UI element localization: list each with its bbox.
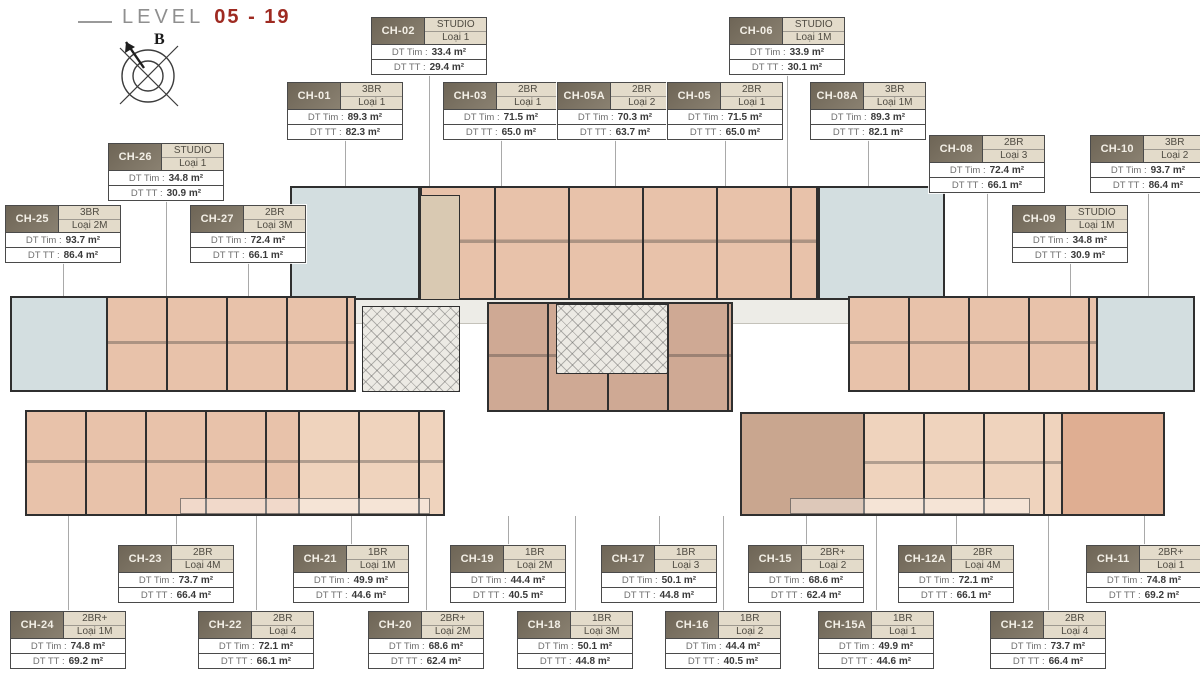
- dt-tt-row: DT TT : 69.2 m²: [1087, 588, 1200, 602]
- unit-id: CH-15: [749, 546, 801, 572]
- dt-tt-row: DT TT : 86.4 m²: [1091, 178, 1200, 192]
- dt-tim-label: DT Tim :: [219, 641, 255, 652]
- dt-tim-label: DT Tim :: [211, 235, 247, 246]
- unit-bedrooms: 2BR: [611, 83, 672, 97]
- dt-tt-value: 86.4 m²: [1149, 180, 1183, 191]
- dt-tt-row: DT TT : 63.7 m²: [558, 125, 672, 139]
- dt-tim-value: 68.6 m²: [429, 641, 463, 652]
- dt-tim-value: 89.3 m²: [871, 112, 905, 123]
- dt-tim-row: DT Tim : 93.7 m²: [1091, 163, 1200, 178]
- dt-tt-row: DT TT : 66.1 m²: [899, 588, 1013, 602]
- unit-loai: Loại 2M: [504, 560, 565, 572]
- unit-card: CH-09 STUDIO Loại 1M DT Tim : 34.8 m² DT…: [1012, 205, 1128, 263]
- dt-tt-value: 44.8 m²: [576, 656, 610, 667]
- dt-tim-value: 72.1 m²: [959, 575, 993, 586]
- unit-card: CH-23 2BR Loại 4M DT Tim : 73.7 m² DT TT…: [118, 545, 234, 603]
- unit-block-top-right-corner: [818, 186, 945, 300]
- unit-card-header: CH-15 2BR+ Loại 2: [749, 546, 863, 573]
- dt-tim-label: DT Tim :: [750, 47, 786, 58]
- dt-tt-label: DT TT :: [833, 127, 865, 138]
- unit-card-header: CH-16 1BR Loại 2: [666, 612, 780, 639]
- unit-id: CH-23: [119, 546, 171, 572]
- unit-type-cell: 2BR+ Loại 1: [1139, 546, 1200, 572]
- dt-tim-label: DT Tim :: [389, 641, 425, 652]
- unit-card-header: CH-03 2BR Loại 1: [444, 83, 558, 110]
- dt-tim-value: 68.6 m²: [809, 575, 843, 586]
- unit-card: CH-20 2BR+ Loại 2M DT Tim : 68.6 m² DT T…: [368, 611, 484, 669]
- dt-tim-row: DT Tim : 34.8 m²: [109, 171, 223, 186]
- unit-bedrooms: 2BR: [172, 546, 233, 560]
- dt-tim-label: DT Tim :: [392, 47, 428, 58]
- dt-tim-row: DT Tim : 89.3 m²: [811, 110, 925, 125]
- unit-card: CH-22 2BR Loại 4 DT Tim : 72.1 m² DT TT …: [198, 611, 314, 669]
- dt-tim-label: DT Tim :: [139, 575, 175, 586]
- dt-tt-value: 69.2 m²: [1145, 590, 1179, 601]
- unit-loai: Loại 2M: [59, 220, 120, 232]
- unit-block-left-arm: [106, 296, 356, 392]
- unit-id: CH-21: [294, 546, 346, 572]
- dt-tim-row: DT Tim : 89.3 m²: [288, 110, 402, 125]
- unit-loai: Loại 2: [611, 97, 672, 109]
- unit-id: CH-16: [666, 612, 718, 638]
- unit-type-cell: 2BR Loại 4: [251, 612, 313, 638]
- unit-id: CH-24: [11, 612, 63, 638]
- unit-loai: Loại 3M: [244, 220, 305, 232]
- dt-tim-label: DT Tim :: [471, 575, 507, 586]
- dt-tim-label: DT Tim :: [686, 641, 722, 652]
- dt-tt-label: DT TT :: [28, 250, 60, 261]
- dt-tt-label: DT TT :: [131, 188, 163, 199]
- dt-tt-value: 44.6 m²: [877, 656, 911, 667]
- dt-tim-label: DT Tim :: [1033, 235, 1069, 246]
- unit-bedrooms: 3BR: [59, 206, 120, 220]
- dt-tt-label: DT TT :: [141, 590, 173, 601]
- dt-tim-row: DT Tim : 73.7 m²: [119, 573, 233, 588]
- dt-tim-label: DT Tim :: [464, 112, 500, 123]
- dt-tim-value: 33.4 m²: [432, 47, 466, 58]
- unit-loai: Loại 4M: [952, 560, 1013, 572]
- unit-type-cell: 2BR Loại 1: [496, 83, 558, 109]
- dt-tt-row: DT TT : 30.9 m²: [1013, 248, 1127, 262]
- dt-tt-value: 62.4 m²: [427, 656, 461, 667]
- unit-type-cell: 1BR Loại 2M: [503, 546, 565, 572]
- dt-tt-row: DT TT : 82.3 m²: [288, 125, 402, 139]
- dt-tt-row: DT TT : 66.4 m²: [119, 588, 233, 602]
- unit-id: CH-20: [369, 612, 421, 638]
- dt-tt-row: DT TT : 30.9 m²: [109, 186, 223, 200]
- dt-tim-value: 72.1 m²: [259, 641, 293, 652]
- dt-tt-row: DT TT : 62.4 m²: [369, 654, 483, 668]
- unit-bedrooms: 2BR+: [422, 612, 483, 626]
- unit-type-cell: 3BR Loại 1M: [863, 83, 925, 109]
- unit-id: CH-02: [372, 18, 424, 44]
- dt-tt-label: DT TT :: [771, 590, 803, 601]
- dt-tt-value: 66.1 m²: [957, 590, 991, 601]
- dt-tim-value: 44.4 m²: [511, 575, 545, 586]
- unit-type-cell: 3BR Loại 1: [340, 83, 402, 109]
- unit-card-header: CH-18 1BR Loại 3M: [518, 612, 632, 639]
- dt-tim-label: DT Tim :: [950, 165, 986, 176]
- dt-tim-value: 74.8 m²: [1147, 575, 1181, 586]
- unit-card: CH-12A 2BR Loại 4M DT Tim : 72.1 m² DT T…: [898, 545, 1014, 603]
- dt-tim-row: DT Tim : 72.1 m²: [899, 573, 1013, 588]
- unit-bedrooms: 1BR: [719, 612, 780, 626]
- dt-tim-row: DT Tim : 74.8 m²: [1087, 573, 1200, 588]
- dt-tt-value: 66.1 m²: [249, 250, 283, 261]
- dt-tim-label: DT Tim :: [769, 575, 805, 586]
- dt-tim-row: DT Tim : 44.4 m²: [451, 573, 565, 588]
- unit-card-header: CH-20 2BR+ Loại 2M: [369, 612, 483, 639]
- dt-tt-row: DT TT : 29.4 m²: [372, 60, 486, 74]
- unit-card-header: CH-09 STUDIO Loại 1M: [1013, 206, 1127, 233]
- dt-tim-row: DT Tim : 93.7 m²: [6, 233, 120, 248]
- unit-bedrooms: 3BR: [341, 83, 402, 97]
- unit-id: CH-12: [991, 612, 1043, 638]
- dt-tim-row: DT Tim : 73.7 m²: [991, 639, 1105, 654]
- unit-bedrooms: 2BR: [497, 83, 558, 97]
- dt-tt-value: 65.0 m²: [726, 127, 760, 138]
- unit-bedrooms: 3BR: [1144, 136, 1200, 150]
- dt-tt-value: 29.4 m²: [430, 62, 464, 73]
- unit-type-cell: 2BR+ Loại 2: [801, 546, 863, 572]
- dt-tim-value: 72.4 m²: [990, 165, 1024, 176]
- dt-tt-value: 30.9 m²: [167, 188, 201, 199]
- dt-tt-value: 44.6 m²: [352, 590, 386, 601]
- unit-card: CH-15 2BR+ Loại 2 DT Tim : 68.6 m² DT TT…: [748, 545, 864, 603]
- unit-type-cell: 1BR Loại 3: [654, 546, 716, 572]
- dt-tim-row: DT Tim : 50.1 m²: [602, 573, 716, 588]
- dt-tim-value: 34.8 m²: [169, 173, 203, 184]
- unit-type-cell: 2BR+ Loại 1M: [63, 612, 125, 638]
- dt-tt-row: DT TT : 44.6 m²: [294, 588, 408, 602]
- unit-card-header: CH-02 STUDIO Loại 1: [372, 18, 486, 45]
- unit-card-header: CH-10 3BR Loại 2: [1091, 136, 1200, 163]
- dt-tt-value: 86.4 m²: [64, 250, 98, 261]
- unit-card-header: CH-23 2BR Loại 4M: [119, 546, 233, 573]
- unit-block-right-corner: [1096, 296, 1195, 392]
- dt-tt-value: 44.8 m²: [660, 590, 694, 601]
- dt-tt-row: DT TT : 44.8 m²: [518, 654, 632, 668]
- unit-bedrooms: 1BR: [655, 546, 716, 560]
- dt-tim-row: DT Tim : 72.1 m²: [199, 639, 313, 654]
- dt-tt-row: DT TT : 62.4 m²: [749, 588, 863, 602]
- unit-card-header: CH-22 2BR Loại 4: [199, 612, 313, 639]
- unit-card: CH-18 1BR Loại 3M DT Tim : 50.1 m² DT TT…: [517, 611, 633, 669]
- dt-tt-label: DT TT :: [540, 656, 572, 667]
- unit-type-cell: 1BR Loại 2: [718, 612, 780, 638]
- unit-card-header: CH-26 STUDIO Loại 1: [109, 144, 223, 171]
- unit-card-header: CH-25 3BR Loại 2M: [6, 206, 120, 233]
- unit-type-cell: 2BR Loại 3M: [243, 206, 305, 232]
- unit-block-top-studio: [420, 195, 460, 300]
- unit-card: CH-24 2BR+ Loại 1M DT Tim : 74.8 m² DT T…: [10, 611, 126, 669]
- unit-type-cell: 1BR Loại 1: [871, 612, 933, 638]
- unit-card: CH-21 1BR Loại 1M DT Tim : 49.9 m² DT TT…: [293, 545, 409, 603]
- unit-card-header: CH-21 1BR Loại 1M: [294, 546, 408, 573]
- dt-tim-row: DT Tim : 49.9 m²: [819, 639, 933, 654]
- unit-loai: Loại 1M: [864, 97, 925, 109]
- dt-tt-label: DT TT :: [752, 62, 784, 73]
- dt-tt-label: DT TT :: [841, 656, 873, 667]
- unit-bedrooms: 2BR: [252, 612, 313, 626]
- unit-card: CH-06 STUDIO Loại 1M DT Tim : 33.9 m² DT…: [729, 17, 845, 75]
- unit-type-cell: 3BR Loại 2: [1143, 136, 1200, 162]
- unit-card-header: CH-19 1BR Loại 2M: [451, 546, 565, 573]
- dt-tt-row: DT TT : 82.1 m²: [811, 125, 925, 139]
- unit-id: CH-17: [602, 546, 654, 572]
- unit-bedrooms: 2BR+: [802, 546, 863, 560]
- unit-type-cell: STUDIO Loại 1: [161, 144, 223, 170]
- unit-loai: Loại 1M: [783, 32, 844, 44]
- unit-card-header: CH-11 2BR+ Loại 1: [1087, 546, 1200, 573]
- dt-tt-label: DT TT :: [213, 250, 245, 261]
- dt-tim-row: DT Tim : 72.4 m²: [191, 233, 305, 248]
- unit-type-cell: 3BR Loại 2M: [58, 206, 120, 232]
- unit-block-right-arm: [848, 296, 1098, 392]
- unit-card: CH-03 2BR Loại 1 DT Tim : 71.5 m² DT TT …: [443, 82, 559, 140]
- dt-tim-row: DT Tim : 70.3 m²: [558, 110, 672, 125]
- dt-tim-label: DT Tim :: [1011, 641, 1047, 652]
- dt-tim-label: DT Tim :: [622, 575, 658, 586]
- unit-card: CH-05 2BR Loại 1 DT Tim : 71.5 m² DT TT …: [667, 82, 783, 140]
- unit-id: CH-18: [518, 612, 570, 638]
- dt-tt-value: 66.4 m²: [1049, 656, 1083, 667]
- unit-loai: Loại 1M: [347, 560, 408, 572]
- unit-loai: Loại 4: [1044, 626, 1105, 638]
- dt-tt-label: DT TT :: [1035, 250, 1067, 261]
- dt-tt-value: 40.5 m²: [509, 590, 543, 601]
- dt-tt-value: 30.1 m²: [788, 62, 822, 73]
- unit-bedrooms: 1BR: [872, 612, 933, 626]
- unit-card: CH-08 2BR Loại 3 DT Tim : 72.4 m² DT TT …: [929, 135, 1045, 193]
- unit-card: CH-10 3BR Loại 2 DT Tim : 93.7 m² DT TT …: [1090, 135, 1200, 193]
- unit-id: CH-27: [191, 206, 243, 232]
- unit-loai: Loại 3: [655, 560, 716, 572]
- unit-loai: Loại 2: [719, 626, 780, 638]
- unit-card: CH-26 STUDIO Loại 1 DT Tim : 34.8 m² DT …: [108, 143, 224, 201]
- unit-bedrooms: 2BR: [983, 136, 1044, 150]
- dt-tim-row: DT Tim : 33.4 m²: [372, 45, 486, 60]
- unit-id: CH-26: [109, 144, 161, 170]
- dt-tt-label: DT TT :: [1113, 180, 1145, 191]
- balcony-strip-bottom-right: [790, 498, 1030, 514]
- unit-card-header: CH-05 2BR Loại 1: [668, 83, 782, 110]
- dt-tim-value: 34.8 m²: [1073, 235, 1107, 246]
- dt-tim-value: 70.3 m²: [618, 112, 652, 123]
- unit-loai: Loại 1: [872, 626, 933, 638]
- dt-tim-row: DT Tim : 68.6 m²: [749, 573, 863, 588]
- dt-tt-label: DT TT :: [580, 127, 612, 138]
- unit-type-cell: 2BR Loại 4: [1043, 612, 1105, 638]
- dt-tt-label: DT TT :: [310, 127, 342, 138]
- dt-tt-label: DT TT :: [394, 62, 426, 73]
- dt-tim-value: 49.9 m²: [879, 641, 913, 652]
- unit-bedrooms: STUDIO: [425, 18, 486, 32]
- unit-bedrooms: 2BR+: [1140, 546, 1200, 560]
- dt-tim-row: DT Tim : 34.8 m²: [1013, 233, 1127, 248]
- unit-bedrooms: 1BR: [571, 612, 632, 626]
- dt-tt-label: DT TT :: [690, 127, 722, 138]
- unit-bedrooms: 3BR: [864, 83, 925, 97]
- dt-tt-row: DT TT : 44.6 m²: [819, 654, 933, 668]
- dt-tim-value: 33.9 m²: [790, 47, 824, 58]
- unit-id: CH-15A: [819, 612, 871, 638]
- unit-card: CH-19 1BR Loại 2M DT Tim : 44.4 m² DT TT…: [450, 545, 566, 603]
- unit-id: CH-09: [1013, 206, 1065, 232]
- unit-card: CH-08A 3BR Loại 1M DT Tim : 89.3 m² DT T…: [810, 82, 926, 140]
- unit-type-cell: 2BR Loại 4M: [171, 546, 233, 572]
- unit-loai: Loại 4: [252, 626, 313, 638]
- unit-card: CH-05A 2BR Loại 2 DT Tim : 70.3 m² DT TT…: [557, 82, 673, 140]
- dt-tt-row: DT TT : 65.0 m²: [444, 125, 558, 139]
- unit-block-bottom-right-c: [1061, 412, 1165, 516]
- dt-tim-row: DT Tim : 68.6 m²: [369, 639, 483, 654]
- dt-tim-label: DT Tim :: [688, 112, 724, 123]
- dt-tim-value: 93.7 m²: [66, 235, 100, 246]
- unit-bedrooms: STUDIO: [162, 144, 223, 158]
- unit-card-header: CH-06 STUDIO Loại 1M: [730, 18, 844, 45]
- unit-loai: Loại 1: [162, 158, 223, 170]
- unit-card: CH-25 3BR Loại 2M DT Tim : 93.7 m² DT TT…: [5, 205, 121, 263]
- elevator-core-left: [362, 306, 460, 392]
- dt-tt-label: DT TT :: [921, 590, 953, 601]
- unit-card-header: CH-17 1BR Loại 3: [602, 546, 716, 573]
- dt-tim-value: 72.4 m²: [251, 235, 285, 246]
- unit-id: CH-01: [288, 83, 340, 109]
- unit-bedrooms: 2BR: [1044, 612, 1105, 626]
- compass-icon: B: [100, 26, 196, 110]
- dt-tim-label: DT Tim :: [314, 575, 350, 586]
- dt-tt-value: 82.1 m²: [869, 127, 903, 138]
- dt-tt-row: DT TT : 40.5 m²: [666, 654, 780, 668]
- unit-id: CH-11: [1087, 546, 1139, 572]
- unit-type-cell: 2BR Loại 2: [610, 83, 672, 109]
- dt-tt-row: DT TT : 86.4 m²: [6, 248, 120, 262]
- dt-tim-value: 74.8 m²: [71, 641, 105, 652]
- dt-tt-value: 65.0 m²: [502, 127, 536, 138]
- dt-tim-value: 71.5 m²: [504, 112, 538, 123]
- dt-tt-label: DT TT :: [473, 590, 505, 601]
- dt-tim-value: 93.7 m²: [1151, 165, 1185, 176]
- dt-tim-row: DT Tim : 49.9 m²: [294, 573, 408, 588]
- unit-type-cell: 2BR+ Loại 2M: [421, 612, 483, 638]
- unit-loai: Loại 1: [721, 97, 782, 109]
- dt-tt-label: DT TT :: [624, 590, 656, 601]
- dt-tim-row: DT Tim : 33.9 m²: [730, 45, 844, 60]
- unit-card-header: CH-08 2BR Loại 3: [930, 136, 1044, 163]
- dt-tim-value: 89.3 m²: [348, 112, 382, 123]
- unit-card: CH-11 2BR+ Loại 1 DT Tim : 74.8 m² DT TT…: [1086, 545, 1200, 603]
- dt-tt-value: 62.4 m²: [807, 590, 841, 601]
- unit-bedrooms: 2BR: [244, 206, 305, 220]
- dt-tt-row: DT TT : 65.0 m²: [668, 125, 782, 139]
- dt-tt-value: 82.3 m²: [346, 127, 380, 138]
- unit-id: CH-06: [730, 18, 782, 44]
- unit-type-cell: STUDIO Loại 1M: [782, 18, 844, 44]
- unit-loai: Loại 2: [802, 560, 863, 572]
- dt-tt-row: DT TT : 66.1 m²: [199, 654, 313, 668]
- compass-north-label: B: [154, 31, 165, 48]
- unit-bedrooms: 2BR+: [64, 612, 125, 626]
- dt-tt-value: 69.2 m²: [69, 656, 103, 667]
- dt-tt-value: 66.1 m²: [988, 180, 1022, 191]
- unit-id: CH-10: [1091, 136, 1143, 162]
- dt-tt-value: 63.7 m²: [616, 127, 650, 138]
- dt-tim-label: DT Tim :: [1107, 575, 1143, 586]
- unit-block-top-left-corner: [290, 186, 420, 300]
- dt-tim-label: DT Tim :: [919, 575, 955, 586]
- dt-tt-row: DT TT : 69.2 m²: [11, 654, 125, 668]
- unit-id: CH-22: [199, 612, 251, 638]
- unit-card-header: CH-15A 1BR Loại 1: [819, 612, 933, 639]
- unit-block-left-corner: [10, 296, 108, 392]
- dt-tim-row: DT Tim : 71.5 m²: [444, 110, 558, 125]
- dt-tim-row: DT Tim : 71.5 m²: [668, 110, 782, 125]
- unit-card: CH-02 STUDIO Loại 1 DT Tim : 33.4 m² DT …: [371, 17, 487, 75]
- unit-type-cell: 2BR Loại 1: [720, 83, 782, 109]
- unit-bedrooms: 2BR: [952, 546, 1013, 560]
- unit-id: CH-03: [444, 83, 496, 109]
- unit-card: CH-16 1BR Loại 2 DT Tim : 44.4 m² DT TT …: [665, 611, 781, 669]
- dt-tt-label: DT TT :: [688, 656, 720, 667]
- dt-tt-value: 30.9 m²: [1071, 250, 1105, 261]
- unit-card: CH-01 3BR Loại 1 DT Tim : 89.3 m² DT TT …: [287, 82, 403, 140]
- unit-type-cell: 1BR Loại 1M: [346, 546, 408, 572]
- dt-tt-label: DT TT :: [1013, 656, 1045, 667]
- dt-tt-row: DT TT : 66.1 m²: [191, 248, 305, 262]
- unit-block-top-wing: [420, 186, 818, 300]
- dt-tim-label: DT Tim :: [26, 235, 62, 246]
- dt-tt-row: DT TT : 40.5 m²: [451, 588, 565, 602]
- dt-tim-row: DT Tim : 72.4 m²: [930, 163, 1044, 178]
- dt-tim-value: 50.1 m²: [578, 641, 612, 652]
- dt-tt-label: DT TT :: [391, 656, 423, 667]
- dt-tt-label: DT TT :: [1109, 590, 1141, 601]
- dt-tim-row: DT Tim : 50.1 m²: [518, 639, 632, 654]
- dt-tt-row: DT TT : 44.8 m²: [602, 588, 716, 602]
- unit-id: CH-08A: [811, 83, 863, 109]
- dt-tt-value: 66.4 m²: [177, 590, 211, 601]
- dt-tim-label: DT Tim :: [578, 112, 614, 123]
- title-dash: [78, 21, 112, 23]
- unit-loai: Loại 1: [1140, 560, 1200, 572]
- dt-tim-value: 71.5 m²: [728, 112, 762, 123]
- stair-core-center: [556, 304, 668, 374]
- unit-loai: Loại 1M: [1066, 220, 1127, 232]
- dt-tim-value: 49.9 m²: [354, 575, 388, 586]
- unit-loai: Loại 3: [983, 150, 1044, 162]
- unit-card: CH-15A 1BR Loại 1 DT Tim : 49.9 m² DT TT…: [818, 611, 934, 669]
- unit-card-header: CH-05A 2BR Loại 2: [558, 83, 672, 110]
- unit-type-cell: 2BR Loại 3: [982, 136, 1044, 162]
- unit-card-header: CH-01 3BR Loại 1: [288, 83, 402, 110]
- dt-tim-value: 50.1 m²: [662, 575, 696, 586]
- dt-tt-label: DT TT :: [221, 656, 253, 667]
- unit-type-cell: STUDIO Loại 1M: [1065, 206, 1127, 232]
- dt-tim-label: DT Tim :: [308, 112, 344, 123]
- dt-tim-row: DT Tim : 74.8 m²: [11, 639, 125, 654]
- dt-tim-row: DT Tim : 44.4 m²: [666, 639, 780, 654]
- unit-bedrooms: STUDIO: [1066, 206, 1127, 220]
- unit-card-header: CH-12 2BR Loại 4: [991, 612, 1105, 639]
- unit-loai: Loại 1M: [64, 626, 125, 638]
- unit-loai: Loại 4M: [172, 560, 233, 572]
- unit-id: CH-08: [930, 136, 982, 162]
- unit-loai: Loại 2M: [422, 626, 483, 638]
- unit-loai: Loại 2: [1144, 150, 1200, 162]
- dt-tt-value: 40.5 m²: [724, 656, 758, 667]
- dt-tim-value: 73.7 m²: [179, 575, 213, 586]
